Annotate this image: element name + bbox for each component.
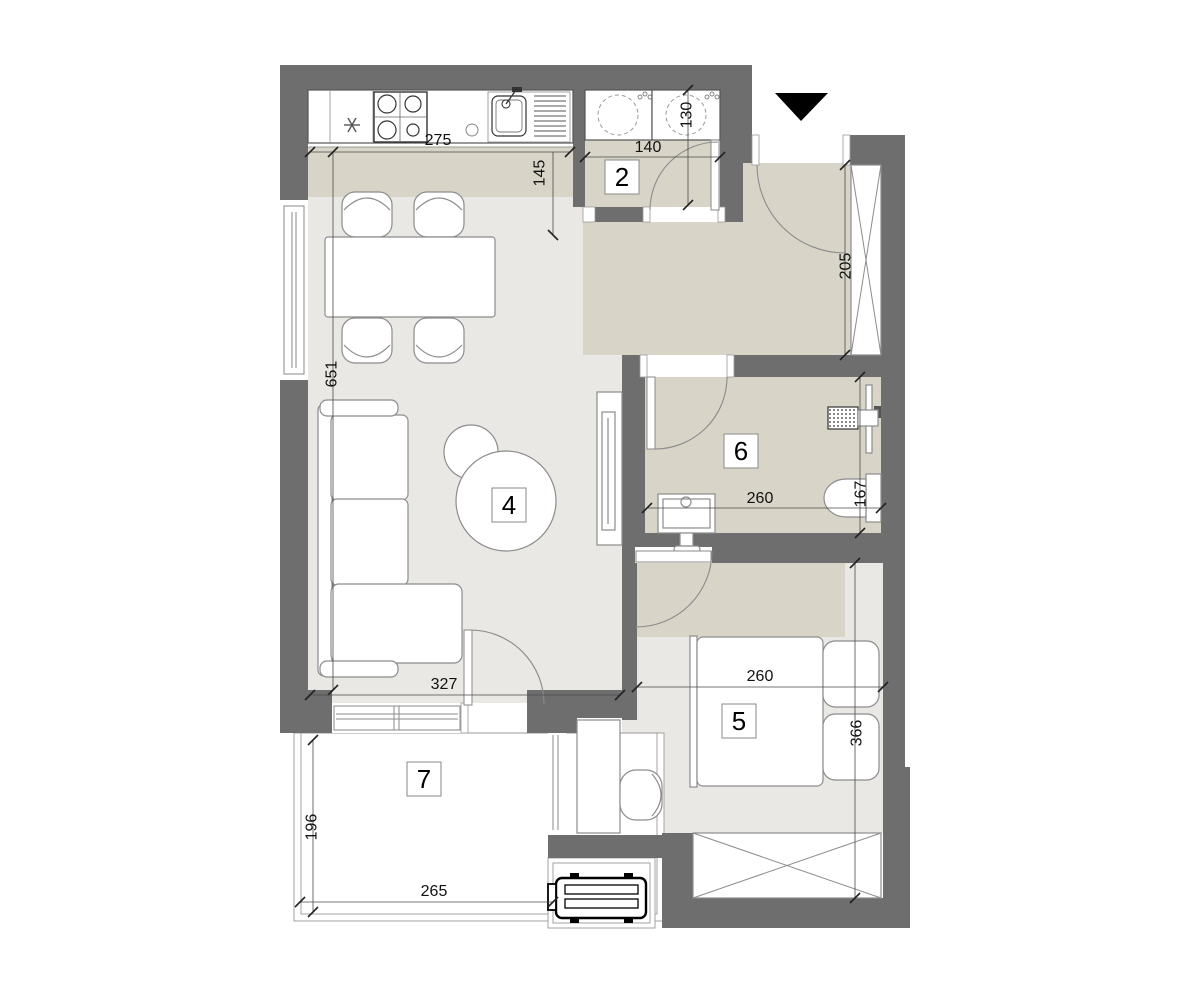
floor-plan: 275 145 140 130 205 651 327 260 167 <box>0 0 1200 1000</box>
wall-entrance-stub <box>740 90 752 163</box>
balcony-door-opening <box>462 703 527 733</box>
bedroom-door-leaf <box>636 551 711 562</box>
dim-balcony-depth: 196 <box>304 814 321 841</box>
room-label-2: 2 <box>615 162 629 192</box>
dim-bedroom-length: 366 <box>849 720 866 747</box>
dim-living-width: 327 <box>431 676 458 693</box>
ac-platform <box>548 858 655 928</box>
bathroom-door-leaf <box>647 377 655 449</box>
dining-chair <box>414 192 464 237</box>
bedroom-floor-east <box>845 563 883 637</box>
heater-icon <box>828 407 878 429</box>
dim-bath-depth: 167 <box>853 481 870 508</box>
wall-southwest-corner <box>280 690 332 733</box>
laundry-appliances <box>585 90 720 140</box>
bath-jamb-right <box>727 355 734 377</box>
hall-wardrobe <box>851 165 881 355</box>
hall-floor <box>583 222 851 355</box>
entrance-jamb-left <box>752 135 759 165</box>
dim-bedroom-width: 260 <box>747 668 774 685</box>
dim-hall-length: 205 <box>838 253 855 280</box>
wall-entrance-east <box>845 135 905 165</box>
wall-bath-north-right <box>727 355 905 377</box>
dining-table <box>325 237 495 317</box>
wall-west <box>280 65 308 733</box>
wall-east-upper <box>881 165 905 377</box>
wall-east-lower <box>883 767 910 898</box>
wall-room2-east <box>720 90 743 222</box>
wall-south-bedroom <box>662 898 910 928</box>
room-label-6: 6 <box>734 436 748 466</box>
pillow <box>823 641 879 707</box>
wall-south-step <box>527 718 577 733</box>
wall-east-bedroom <box>883 563 905 767</box>
dining-chair <box>342 318 392 363</box>
dim-kitchen-width: 275 <box>425 132 452 149</box>
sink-icon <box>488 87 570 142</box>
window-south <box>332 703 468 733</box>
wall-kitchen-room2 <box>573 90 585 207</box>
floor-plan-page: 275 145 140 130 205 651 327 260 167 <box>0 0 1200 1000</box>
entrance-floor <box>743 163 851 222</box>
dining-chair <box>414 318 464 363</box>
dim-room2-depth: 130 <box>679 102 696 129</box>
dim-bath-width: 260 <box>747 490 774 507</box>
dim-balcony-width: 265 <box>421 883 448 900</box>
wall-north <box>280 65 752 90</box>
balcony-door-jamb <box>461 703 468 733</box>
desk <box>577 720 620 833</box>
wall-tv <box>622 377 645 533</box>
room2-door-leaf <box>711 140 719 210</box>
washing-machine-icon <box>585 90 652 140</box>
dim-kitchen-depth: 145 <box>532 160 549 187</box>
stove-icon <box>374 92 427 142</box>
dim-living-length: 651 <box>324 361 341 388</box>
tv-cabinet <box>597 392 622 545</box>
window-bedroom-bay <box>548 733 566 833</box>
wall-bedroom-west <box>622 563 637 720</box>
room-label-5: 5 <box>732 706 746 736</box>
wall-south-living <box>527 690 622 718</box>
wall-bay-south <box>548 835 673 858</box>
balcony-door-leaf <box>464 630 472 705</box>
ac-unit-icon <box>548 873 646 923</box>
desk-chair <box>620 770 662 820</box>
bath-jamb-left <box>640 355 647 377</box>
room-label-4: 4 <box>502 490 516 520</box>
entrance-arrow-icon <box>775 93 828 121</box>
window-west <box>280 200 308 380</box>
dining-chair <box>342 192 392 237</box>
room2-jamb-left <box>643 207 650 222</box>
room2-wall-endcap <box>583 207 595 222</box>
bedroom-entry-floor <box>637 563 845 637</box>
dim-room2-width: 140 <box>635 139 662 156</box>
wall-east-bath <box>881 377 905 563</box>
room-label-7: 7 <box>417 764 431 794</box>
bedroom-wardrobe <box>693 833 881 898</box>
